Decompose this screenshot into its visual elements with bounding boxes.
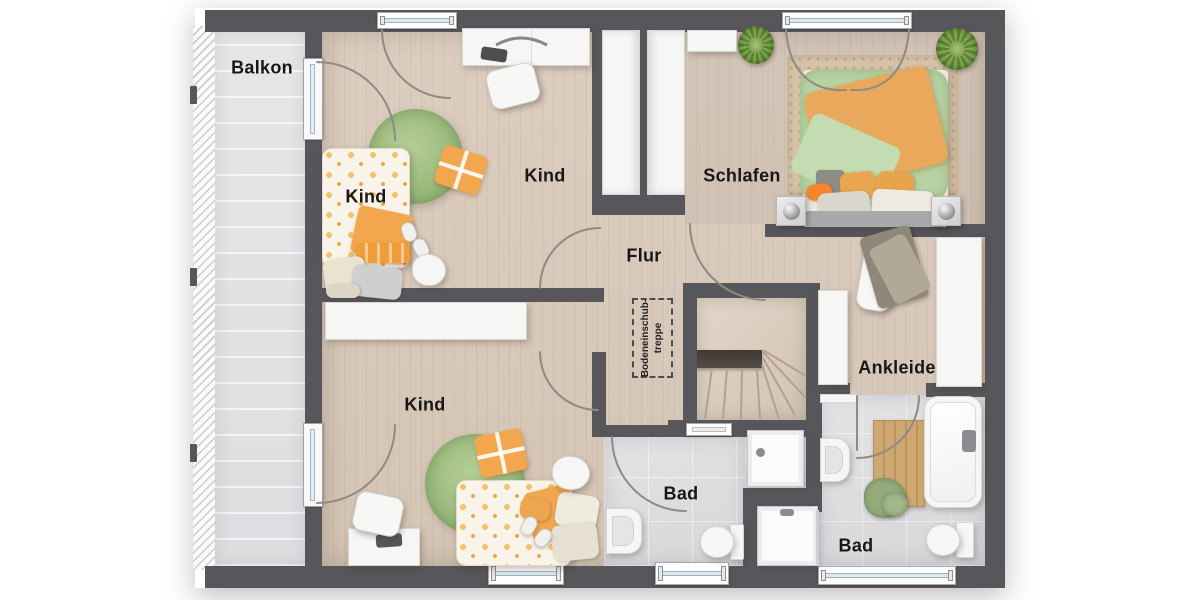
pillow (550, 522, 600, 563)
wall-stair-top (683, 283, 820, 298)
railing-post (190, 86, 197, 104)
window-cap (948, 570, 953, 581)
room-label-kind-top-bed: Kind (345, 187, 386, 208)
nightstand-knob (783, 203, 800, 220)
kids-table (552, 456, 590, 490)
room-label-schlafen: Schlafen (703, 166, 780, 187)
window-cap (821, 570, 826, 581)
plant (936, 28, 978, 70)
room-label-ankleide: Ankleide (858, 358, 935, 379)
window-glass (494, 571, 558, 576)
sink-basin (612, 516, 634, 546)
window (782, 12, 912, 29)
wardrobe (936, 237, 982, 387)
attic-hatch-line1: Bodeneinschub- (640, 299, 653, 377)
wardrobe-long (325, 302, 527, 340)
closet (687, 30, 737, 52)
window-glass (661, 571, 723, 576)
towel-green (882, 492, 908, 516)
door-glass (310, 429, 315, 501)
balcony-railing (193, 26, 215, 570)
window-cap (380, 16, 385, 25)
balcony-door (303, 58, 323, 140)
shower-glass (816, 510, 819, 564)
balcony-floor (215, 30, 305, 566)
room-label-kind-top: Kind (524, 166, 565, 187)
attic-hatch-box: Bodeneinschub- treppe (632, 298, 673, 378)
mattress-edge (805, 211, 945, 227)
wall-tub-left (743, 508, 757, 566)
nightstand-knob (938, 203, 955, 220)
sink-basin (825, 446, 843, 474)
shower (747, 430, 804, 487)
attic-hatch-label: Bodeneinschub- treppe (640, 299, 666, 377)
room-label-kind-bottom: Kind (404, 395, 445, 416)
window (655, 562, 729, 585)
bath-door (686, 423, 732, 436)
room-label-bad-left: Bad (664, 484, 699, 505)
window-cap (449, 16, 454, 25)
wall-wardrobe-mid (640, 30, 647, 195)
wall-wardrobe-left (592, 30, 602, 195)
wall-bath-left-top-a (604, 425, 686, 437)
plant-core (949, 41, 966, 58)
faucet (780, 509, 794, 516)
built-in-wardrobe (647, 30, 685, 195)
room-label-bad-right: Bad (839, 536, 874, 557)
wall-flur-top (592, 195, 685, 215)
toilet (926, 524, 960, 556)
wall-right (985, 10, 1005, 588)
wall-stair-left (683, 283, 697, 423)
window-glass (824, 573, 950, 578)
floorplan-canvas: Bodeneinschub- treppe (0, 0, 1200, 600)
railing-post (190, 268, 197, 286)
toilet (700, 526, 734, 558)
wall-tub-top (743, 488, 806, 508)
faucet (962, 430, 976, 452)
desk-seam (531, 30, 532, 64)
balcony-door (303, 423, 323, 507)
attic-hatch-line2: treppe (653, 299, 666, 377)
built-in-wardrobe (602, 30, 640, 195)
window-cap (491, 566, 496, 581)
bathtub-basin (930, 402, 976, 502)
railing-post (190, 444, 197, 462)
shower-head (756, 448, 765, 457)
window-glass (788, 18, 906, 23)
plant (738, 26, 774, 64)
door-glass (310, 64, 315, 134)
window (377, 12, 457, 29)
window-cap (904, 16, 909, 25)
room-label-flur: Flur (626, 246, 661, 267)
nightstand (776, 196, 806, 226)
pillow (326, 284, 360, 298)
window-cap (556, 566, 561, 581)
window-cap (658, 566, 663, 581)
window-cap (785, 16, 790, 25)
plant-core (749, 37, 763, 52)
window (818, 566, 956, 585)
stair-void (697, 350, 762, 368)
bed-footboard (356, 243, 410, 263)
nightstand (931, 196, 961, 226)
towel-rail (820, 394, 858, 403)
window-cap (721, 566, 726, 581)
kids-table (412, 254, 446, 286)
window-glass (383, 18, 451, 23)
wardrobe (818, 290, 848, 385)
door-panel (692, 427, 726, 432)
room-label-balkon: Balkon (231, 58, 293, 79)
